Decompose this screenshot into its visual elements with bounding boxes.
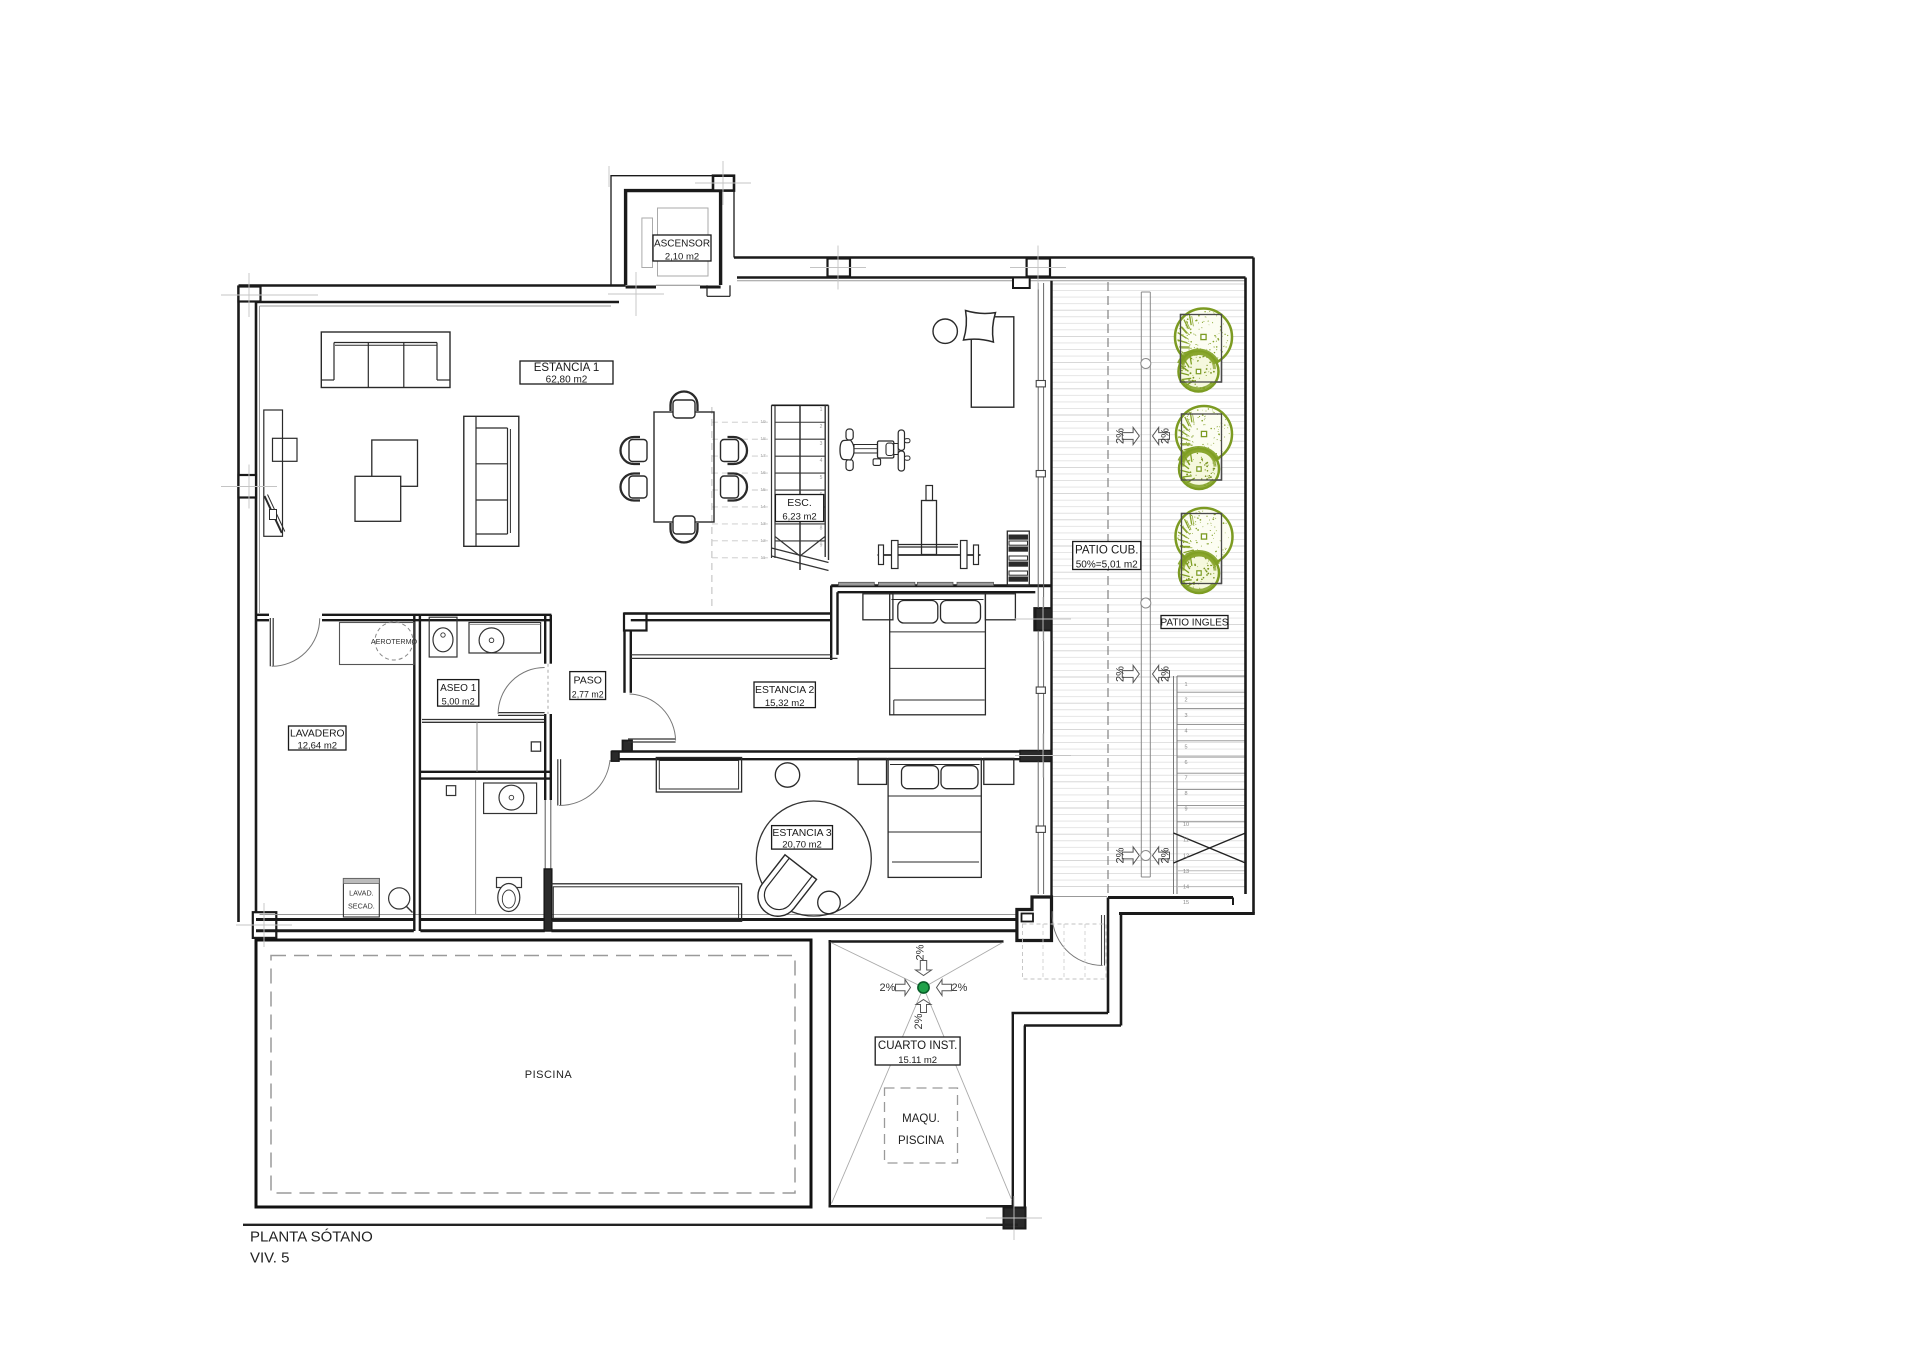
svg-text:ESTANCIA 1: ESTANCIA 1 — [534, 362, 600, 374]
svg-text:1: 1 — [1184, 682, 1187, 688]
svg-text:14: 14 — [1183, 884, 1189, 890]
svg-text:2%: 2% — [1160, 666, 1172, 682]
svg-text:7: 7 — [1184, 775, 1187, 781]
svg-text:3: 3 — [1184, 713, 1187, 719]
svg-text:2: 2 — [1184, 698, 1187, 704]
svg-text:12: 12 — [1183, 853, 1189, 859]
svg-text:2,10 m2: 2,10 m2 — [665, 251, 699, 262]
svg-text:CUARTO INST.: CUARTO INST. — [878, 1040, 957, 1052]
svg-text:8: 8 — [1184, 791, 1187, 797]
svg-text:15,32 m2: 15,32 m2 — [765, 698, 805, 709]
svg-text:10: 10 — [1183, 822, 1189, 828]
svg-text:2%: 2% — [952, 982, 968, 994]
svg-text:11: 11 — [761, 555, 766, 561]
svg-text:3: 3 — [820, 441, 823, 447]
svg-text:2%: 2% — [1115, 666, 1127, 682]
svg-text:ESTANCIA 2: ESTANCIA 2 — [755, 685, 815, 696]
svg-text:PLANTA SÓTANO: PLANTA SÓTANO — [250, 1229, 373, 1246]
svg-text:14: 14 — [760, 504, 766, 510]
svg-text:1: 1 — [820, 407, 823, 413]
svg-text:50%=5,01 m2: 50%=5,01 m2 — [1076, 560, 1138, 571]
svg-text:11: 11 — [1183, 838, 1189, 844]
svg-text:VIV. 5: VIV. 5 — [250, 1250, 289, 1267]
svg-text:5,00 m2: 5,00 m2 — [442, 696, 475, 706]
svg-text:2%: 2% — [915, 944, 927, 960]
svg-text:2: 2 — [820, 424, 823, 430]
svg-text:19: 19 — [760, 419, 766, 425]
svg-text:LAVAD.: LAVAD. — [349, 889, 374, 898]
svg-text:6,23 m2: 6,23 m2 — [782, 512, 816, 523]
svg-text:6: 6 — [1184, 760, 1187, 766]
svg-text:SECAD.: SECAD. — [348, 902, 375, 911]
svg-text:2%: 2% — [880, 982, 896, 994]
svg-text:MAQU.: MAQU. — [902, 1113, 940, 1125]
svg-text:9: 9 — [820, 543, 823, 549]
svg-text:16: 16 — [760, 470, 766, 476]
svg-text:ESTANCIA 3: ESTANCIA 3 — [772, 828, 832, 839]
svg-text:ASCENSOR: ASCENSOR — [654, 238, 710, 249]
svg-text:2%: 2% — [913, 1013, 925, 1029]
svg-text:2%: 2% — [1115, 428, 1127, 444]
svg-text:20,70 m2: 20,70 m2 — [782, 840, 822, 851]
svg-text:15: 15 — [1183, 900, 1189, 906]
svg-text:4: 4 — [820, 458, 823, 464]
svg-text:17: 17 — [760, 453, 766, 459]
svg-text:4: 4 — [1184, 729, 1187, 735]
svg-text:5: 5 — [1184, 744, 1187, 750]
svg-text:LAVADERO: LAVADERO — [290, 728, 345, 739]
svg-text:ESC.: ESC. — [787, 497, 812, 509]
svg-text:12: 12 — [760, 538, 766, 544]
svg-text:PATIO INGLES: PATIO INGLES — [1161, 618, 1229, 629]
svg-text:13: 13 — [760, 521, 766, 527]
svg-text:8: 8 — [820, 526, 823, 532]
svg-text:13: 13 — [1183, 869, 1189, 875]
svg-text:PISCINA: PISCINA — [525, 1069, 573, 1081]
svg-text:ASEO 1: ASEO 1 — [440, 683, 477, 694]
svg-text:12,64 m2: 12,64 m2 — [297, 740, 337, 751]
svg-text:15: 15 — [760, 487, 766, 493]
svg-text:2%: 2% — [1160, 847, 1172, 863]
svg-text:15.11 m2: 15.11 m2 — [898, 1055, 937, 1066]
svg-text:2,77 m2: 2,77 m2 — [572, 690, 604, 700]
svg-text:18: 18 — [760, 436, 766, 442]
svg-text:2%: 2% — [1160, 428, 1172, 444]
svg-text:9: 9 — [1184, 807, 1187, 813]
svg-text:AEROTERMO: AEROTERMO — [371, 637, 418, 646]
svg-text:62,80 m2: 62,80 m2 — [546, 375, 588, 386]
svg-text:PASO: PASO — [573, 675, 601, 687]
svg-text:PISCINA: PISCINA — [898, 1135, 944, 1147]
svg-text:5: 5 — [820, 475, 823, 481]
svg-text:2%: 2% — [1115, 847, 1127, 863]
svg-text:PATIO CUB.: PATIO CUB. — [1075, 545, 1138, 557]
